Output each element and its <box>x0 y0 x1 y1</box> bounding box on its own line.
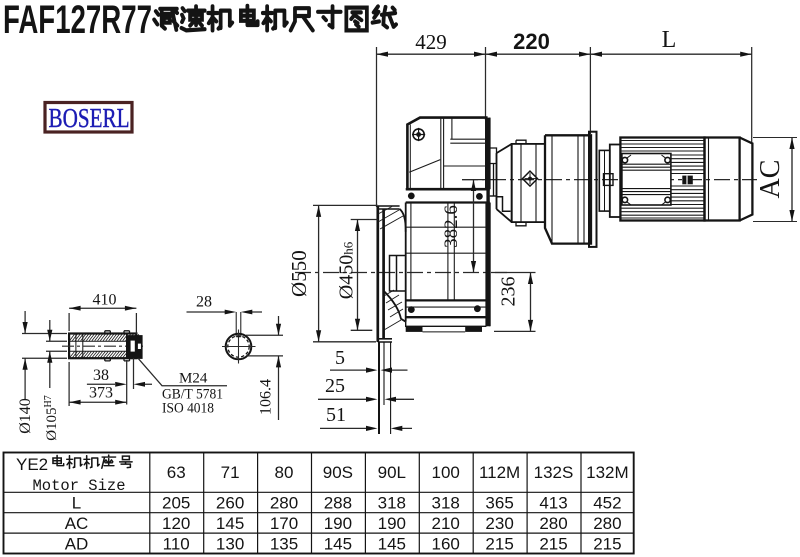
svg-text:132S: 132S <box>534 463 574 482</box>
svg-text:145: 145 <box>216 514 244 533</box>
svg-text:110: 110 <box>163 535 190 554</box>
svg-text:280: 280 <box>593 514 621 533</box>
svg-text:L: L <box>662 27 677 53</box>
svg-text:215: 215 <box>485 535 513 554</box>
svg-text:63: 63 <box>167 463 186 482</box>
svg-text:365: 365 <box>485 494 513 513</box>
svg-text:M24: M24 <box>179 371 208 387</box>
svg-text:280: 280 <box>270 494 298 513</box>
svg-text:190: 190 <box>324 514 352 533</box>
svg-text:L: L <box>72 494 81 513</box>
svg-text:236: 236 <box>498 277 520 307</box>
svg-text:Ø140: Ø140 <box>17 398 34 434</box>
svg-text:90S: 90S <box>323 463 353 482</box>
svg-text:120: 120 <box>162 514 190 533</box>
svg-text:373: 373 <box>89 385 113 402</box>
svg-text:FAF127R77: FAF127R77 <box>3 0 152 42</box>
svg-text:28: 28 <box>196 294 212 311</box>
svg-text:413: 413 <box>539 494 567 513</box>
svg-text:205: 205 <box>162 494 190 513</box>
svg-text:145: 145 <box>324 535 352 554</box>
svg-text:382.6: 382.6 <box>441 205 462 248</box>
svg-text:160: 160 <box>432 535 460 554</box>
svg-text:38: 38 <box>93 367 109 384</box>
svg-text:AD: AD <box>65 535 89 554</box>
svg-text:280: 280 <box>539 514 567 533</box>
svg-text:130: 130 <box>216 535 244 554</box>
svg-text:71: 71 <box>221 463 240 482</box>
svg-text:145: 145 <box>378 535 406 554</box>
svg-text:132M: 132M <box>586 463 629 482</box>
svg-text:51: 51 <box>326 404 346 426</box>
svg-text:ISO 4018: ISO 4018 <box>162 401 214 417</box>
svg-text:318: 318 <box>378 494 406 513</box>
svg-text:288: 288 <box>324 494 352 513</box>
svg-text:215: 215 <box>539 535 567 554</box>
svg-text:220: 220 <box>513 29 550 54</box>
svg-text:BOSERL: BOSERL <box>49 103 130 133</box>
svg-text:Motor Size: Motor Size <box>32 477 125 495</box>
svg-text:318: 318 <box>432 494 460 513</box>
svg-text:260: 260 <box>216 494 244 513</box>
svg-text:AC: AC <box>65 514 89 533</box>
svg-text:215: 215 <box>593 535 621 554</box>
svg-text:80: 80 <box>275 463 294 482</box>
svg-text:452: 452 <box>593 494 621 513</box>
svg-text:429: 429 <box>415 30 447 54</box>
svg-text:100: 100 <box>432 463 460 482</box>
svg-text:135: 135 <box>270 535 298 554</box>
svg-text:90L: 90L <box>378 463 406 482</box>
svg-text:YE2: YE2 <box>16 455 48 474</box>
svg-text:Ø550: Ø550 <box>287 250 311 297</box>
svg-text:190: 190 <box>378 514 406 533</box>
svg-text:112M: 112M <box>479 463 520 482</box>
svg-text:230: 230 <box>485 514 513 533</box>
svg-text:AC: AC <box>755 160 786 199</box>
svg-text:106.4: 106.4 <box>258 379 275 415</box>
svg-text:210: 210 <box>432 514 460 533</box>
svg-text:5: 5 <box>335 347 345 369</box>
svg-text:170: 170 <box>270 514 298 533</box>
svg-text:410: 410 <box>93 292 117 309</box>
svg-text:25: 25 <box>325 375 345 397</box>
